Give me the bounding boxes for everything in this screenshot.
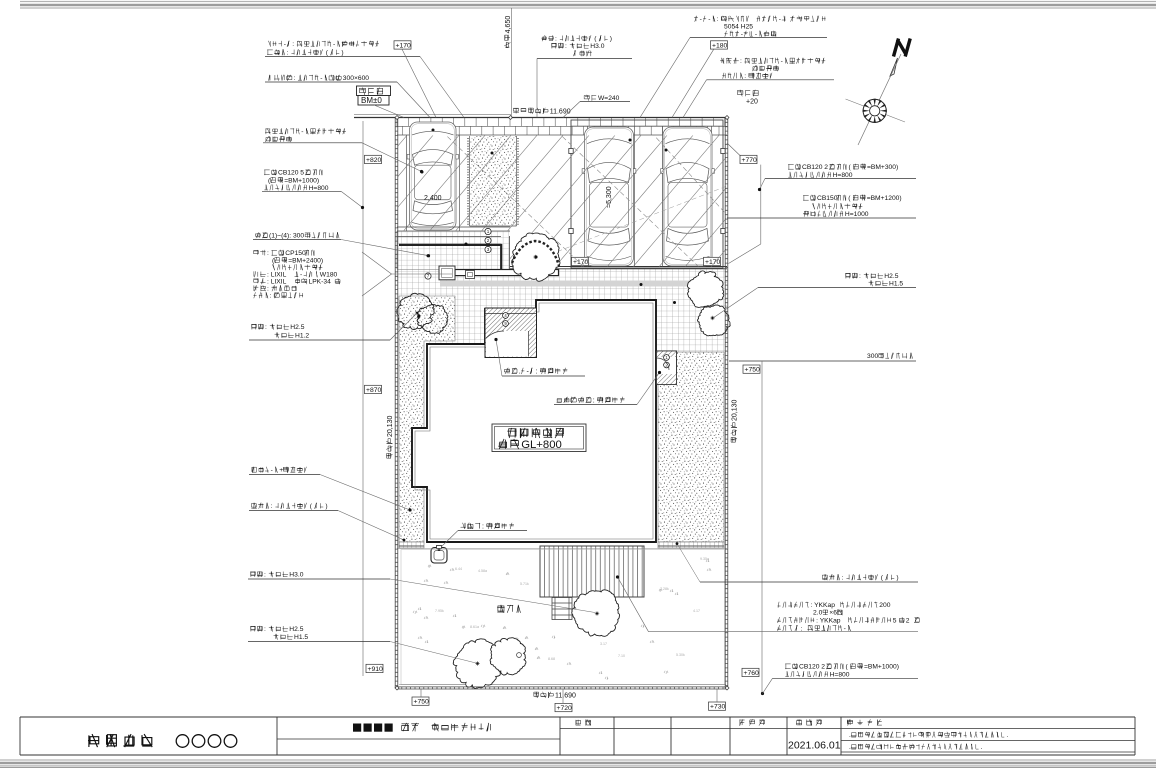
svg-text:4,650: 4,650	[505, 16, 512, 34]
svg-text:): )	[610, 36, 612, 43]
svg-text::: :	[482, 524, 484, 531]
svg-text:2: 2	[487, 238, 490, 243]
svg-text:+20: +20	[746, 99, 758, 106]
svg-text::: :	[565, 43, 567, 50]
svg-text:-: -	[300, 272, 302, 279]
svg-text:×6: ×6	[829, 610, 837, 617]
svg-text::: :	[287, 50, 289, 57]
svg-text:-: -	[779, 16, 781, 23]
svg-text:H2.5: H2.5	[290, 324, 304, 331]
svg-text:=5,300: =5,300	[606, 186, 613, 208]
svg-text::: :	[744, 73, 746, 80]
svg-text:8.68: 8.68	[548, 657, 555, 661]
svg-text::: :	[264, 572, 266, 579]
svg-text::: :	[294, 75, 296, 82]
svg-text::: :	[555, 36, 557, 43]
svg-text:=BM+1000): =BM+1000)	[864, 664, 899, 671]
svg-text::: :	[271, 503, 273, 510]
svg-text:: YKKap: : YKKap	[816, 618, 841, 625]
svg-text::: :	[267, 250, 269, 257]
svg-text:H=800: H=800	[309, 185, 329, 192]
svg-text:+750: +750	[745, 367, 761, 374]
svg-text:8.61a: 8.61a	[470, 625, 479, 629]
svg-text:300: 300	[867, 353, 878, 360]
svg-text:=BM+2400): =BM+2400)	[288, 258, 323, 265]
svg-text:3.17: 3.17	[600, 642, 607, 646]
svg-text:5.71k: 5.71k	[520, 582, 529, 586]
svg-text:=BM+1000): =BM+1000)	[284, 178, 319, 185]
svg-text:H1.5: H1.5	[889, 281, 903, 288]
svg-text:+180: +180	[712, 43, 728, 50]
svg-text:11.690: 11.690	[550, 109, 571, 116]
svg-text::: :	[536, 369, 538, 376]
svg-text:4.58a: 4.58a	[478, 569, 487, 573]
svg-text:7: 7	[427, 274, 430, 279]
svg-text:+910: +910	[368, 666, 384, 673]
svg-text:+: +	[279, 467, 283, 474]
svg-text:+170: +170	[396, 43, 412, 50]
svg-text:11.690: 11.690	[555, 693, 576, 700]
svg-text:CP150: CP150	[285, 250, 306, 257]
svg-text:-: -	[271, 467, 273, 474]
svg-text::: :	[717, 16, 719, 23]
svg-text:H3.0: H3.0	[590, 43, 604, 50]
svg-text:-: -	[708, 16, 710, 23]
svg-text:200: 200	[879, 602, 890, 609]
svg-text:=BM+1200): =BM+1200)	[867, 195, 902, 202]
svg-text:-: -	[333, 41, 335, 48]
svg-text:2021.06.01: 2021.06.01	[788, 740, 841, 752]
svg-text:+870: +870	[366, 387, 382, 394]
svg-text::: :	[270, 293, 272, 300]
svg-text:7.95k: 7.95k	[435, 609, 444, 613]
svg-text:+170: +170	[573, 259, 589, 266]
svg-text:W=240: W=240	[598, 95, 620, 102]
svg-text:4.17: 4.17	[693, 609, 700, 613]
svg-text:CB150: CB150	[817, 195, 838, 202]
svg-text:(1)~(4): 300: (1)~(4): 300	[269, 233, 304, 240]
svg-text:: LIXIL: : LIXIL	[267, 272, 287, 279]
svg-text:2: 2	[906, 618, 910, 625]
svg-text::: :	[593, 398, 595, 405]
svg-text:.: .	[981, 744, 983, 751]
svg-text::: :	[292, 41, 294, 48]
svg-text:5054 H25: 5054 H25	[724, 24, 753, 31]
svg-text:H1.5: H1.5	[294, 634, 308, 641]
svg-text:): )	[896, 575, 898, 582]
svg-text:CB120 5: CB120 5	[278, 170, 304, 177]
svg-text:: YKKap: : YKKap	[811, 602, 836, 609]
svg-text:1: 1	[487, 229, 490, 234]
svg-text:.: .	[519, 369, 521, 376]
svg-text:2.0: 2.0	[813, 610, 823, 617]
svg-text:-: -	[320, 75, 322, 82]
svg-text:): )	[325, 503, 327, 510]
svg-text:.: .	[849, 744, 851, 751]
svg-text::: :	[265, 324, 267, 331]
svg-text:-: -	[781, 58, 783, 65]
svg-text:BM±0: BM±0	[361, 96, 382, 105]
svg-text::: :	[859, 273, 861, 280]
svg-text:H2.5: H2.5	[289, 626, 303, 633]
svg-text:LPK-34: LPK-34	[309, 279, 332, 286]
svg-text::: :	[740, 58, 742, 65]
svg-text:=BM+300): =BM+300)	[867, 164, 898, 171]
svg-text:5.30k: 5.30k	[676, 653, 685, 657]
svg-text:CB120 2: CB120 2	[799, 664, 825, 671]
svg-text:20,130: 20,130	[387, 415, 394, 437]
svg-text:3: 3	[487, 247, 490, 252]
svg-text:): )	[341, 50, 343, 57]
svg-text:+750: +750	[414, 699, 430, 706]
svg-text::: :	[842, 575, 844, 582]
svg-text:H1.2: H1.2	[295, 333, 309, 340]
svg-text:-: -	[301, 129, 303, 136]
svg-text:.: .	[1006, 732, 1008, 739]
svg-text:: LIXIL: : LIXIL	[267, 279, 287, 286]
svg-text:W180: W180	[320, 272, 338, 279]
svg-text:20,130: 20,130	[732, 399, 739, 421]
svg-text:H2.5: H2.5	[884, 273, 898, 280]
svg-text:GL+800: GL+800	[521, 439, 562, 451]
svg-text:+760: +760	[744, 670, 760, 677]
svg-text:9.35a: 9.35a	[700, 557, 709, 561]
svg-text:H=1000: H=1000	[845, 211, 869, 218]
svg-text:300×600: 300×600	[343, 75, 370, 82]
svg-text:.: .	[849, 732, 851, 739]
svg-text:-: -	[700, 16, 702, 23]
svg-text:7.28k: 7.28k	[660, 587, 669, 591]
svg-text:CB120 2: CB120 2	[802, 164, 828, 171]
svg-text:-: -	[284, 41, 286, 48]
svg-text::: :	[264, 626, 266, 633]
svg-text:H=800: H=800	[830, 672, 850, 679]
svg-text:+730: +730	[710, 704, 726, 711]
svg-text::: :	[267, 286, 269, 293]
svg-text:+720: +720	[557, 705, 573, 712]
svg-text:7.10: 7.10	[618, 654, 625, 658]
svg-text:+820: +820	[366, 157, 382, 164]
svg-text:6.44: 6.44	[455, 567, 462, 571]
svg-text:2,400: 2,400	[424, 195, 442, 202]
svg-text:5: 5	[893, 618, 897, 625]
svg-text:+770: +770	[742, 157, 758, 164]
svg-text:H3.0: H3.0	[289, 572, 303, 579]
